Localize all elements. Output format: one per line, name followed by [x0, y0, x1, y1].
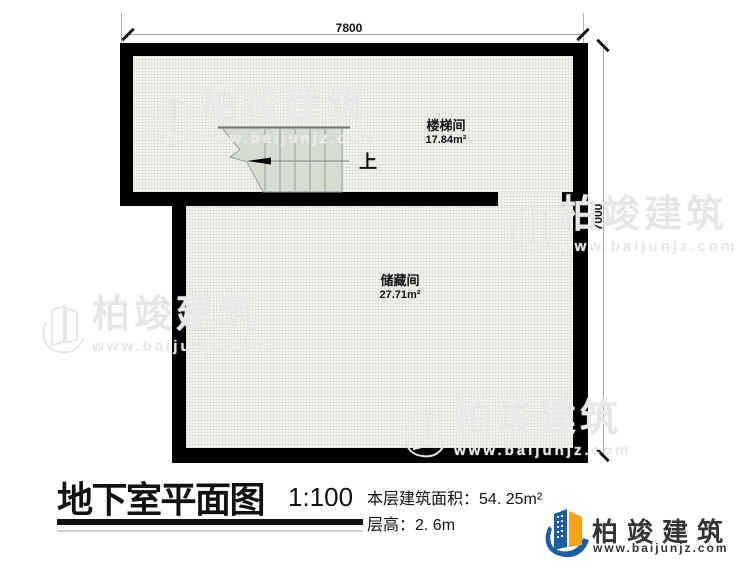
wall-left-upper [120, 43, 133, 206]
floor-height-value: 2. 6m [415, 517, 455, 534]
dimension-label-top: 7800 [319, 21, 379, 35]
extension-line-top-right [583, 13, 584, 43]
storage-room-floor [186, 206, 573, 448]
drawing-scale: 1:100 [288, 482, 353, 513]
wall-top [120, 43, 588, 56]
brand-logo-icon [540, 502, 590, 558]
title-underline [57, 519, 363, 525]
brand-website: www.baijunjz.com [593, 541, 729, 555]
watermark-building-icon [38, 300, 84, 354]
room-label-stairwell: 楼梯间 17.84m² [410, 119, 482, 147]
wall-right [573, 43, 588, 463]
wall-left-lower [172, 192, 186, 463]
stair-up-label: 上 [359, 148, 377, 174]
floor-height-label: 层高： [367, 517, 415, 534]
room-label-storage: 储藏间 27.71m² [364, 274, 436, 302]
floor-height-line: 层高：2. 6m [367, 511, 455, 535]
floor-area-label: 本层建筑面积： [367, 491, 479, 508]
room-name: 储藏间 [364, 274, 436, 289]
staircase-icon [210, 120, 360, 195]
dimension-line-right [603, 46, 604, 456]
wall-stub-doorway [562, 192, 573, 206]
room-area: 27.71m² [364, 289, 436, 302]
wall-bottom [172, 448, 588, 463]
floor-area-line: 本层建筑面积：54. 25m² [367, 485, 542, 509]
room-area: 17.84m² [410, 134, 482, 147]
drawing-title: 地下室平面图 [57, 471, 264, 523]
doorway-opening [498, 192, 562, 206]
title-underline-thin [57, 530, 363, 532]
floor-area-value: 54. 25m² [479, 491, 542, 508]
floor-plan-sheet: 7800 7000 上 楼梯间 17.84m² 储藏间 27.71m² [0, 0, 750, 573]
room-name: 楼梯间 [410, 119, 482, 134]
dimension-label-right: 7000 [591, 196, 605, 238]
